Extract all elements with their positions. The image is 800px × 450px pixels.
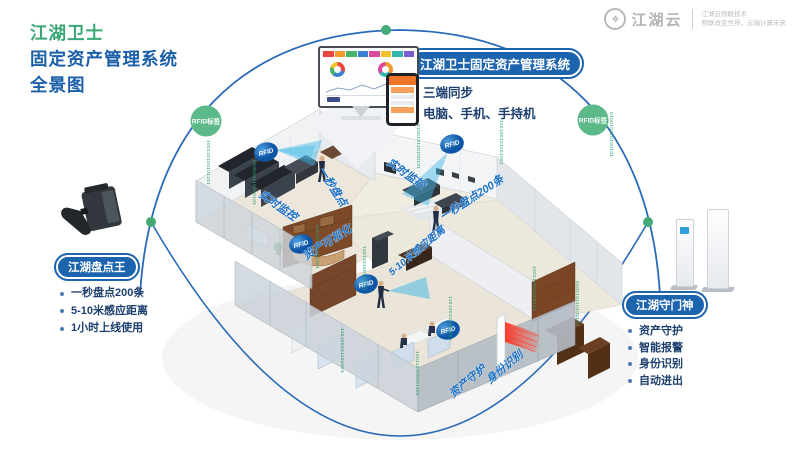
- gate-bullet: 资产守护: [628, 323, 706, 340]
- system-bullet: 三端同步: [412, 83, 582, 104]
- logo-name: 江湖云: [631, 9, 682, 30]
- connection-dot-right: [643, 217, 653, 227]
- logo-taglines: 江湖云物联技术 物联改变世界，云端计算未来: [702, 10, 787, 28]
- binary-string: 100110100101101: [415, 351, 420, 396]
- gate-bullets: 资产守护 智能报警 身份识别 自动进出: [628, 323, 706, 389]
- gate-pillar-with-screen: [676, 219, 694, 287]
- gate-bullet: 智能报警: [628, 340, 706, 357]
- phone-content-block: [391, 87, 414, 93]
- title-line-3: 全景图: [30, 72, 178, 98]
- binary-string: 010010110100101: [252, 160, 257, 205]
- scanner-pill: 江湖盘点王: [56, 255, 138, 279]
- gate-screen: [680, 227, 689, 234]
- binary-string: 010010110100101: [416, 124, 421, 169]
- scanner-bullet: 一秒盘点200条: [60, 285, 148, 303]
- gate-pill: 江湖守门神: [624, 293, 706, 317]
- binary-string: 010010110100101: [609, 112, 614, 157]
- system-pill: 江湖卫士固定资产管理系统: [408, 50, 582, 77]
- rfid-node-right-label: RFID标签: [579, 116, 608, 125]
- scanner-bullet: 1小时上线使用: [60, 320, 148, 338]
- poster: RFID RFID RFID RFID RFID 100110100101101…: [0, 0, 800, 450]
- handheld-scanner-device: [57, 182, 123, 239]
- phone-content-row: [391, 95, 414, 99]
- title-line-1: 江湖卫士: [30, 20, 178, 46]
- connection-dot-left: [146, 217, 156, 227]
- callout-system: 江湖卫士固定资产管理系统 三端同步 电脑、手机、手持机: [408, 50, 582, 125]
- gate-bullet: 自动进出: [628, 373, 706, 390]
- callout-gate: 江湖守门神 资产守护 智能报警 身份识别 自动进出: [624, 293, 706, 389]
- callout-scanner: 江湖盘点王 一秒盘点200条 5-10米感应距离 1小时上线使用: [56, 255, 148, 338]
- binary-string: 010010110100101: [575, 281, 580, 326]
- gate-pillar: [707, 209, 729, 289]
- phone-content-row: [391, 101, 414, 105]
- phone-content-block: [391, 107, 414, 113]
- logo-diamond-icon: ❖: [604, 8, 626, 30]
- binary-string: 110100101101001: [448, 296, 453, 341]
- mobile-phone: [386, 73, 419, 126]
- gate-bullet: 身份识别: [628, 356, 706, 373]
- connection-dot-top: [381, 25, 391, 35]
- logo-tagline-2: 物联改变世界，云端计算未来: [702, 19, 787, 28]
- binary-string: 100110100101101: [206, 140, 211, 185]
- scanner-bullets: 一秒盘点200条 5-10米感应距离 1小时上线使用: [60, 285, 148, 338]
- title-line-2: 固定资产管理系统: [30, 46, 178, 72]
- donut-chart: [330, 62, 345, 77]
- brand-logo: ❖ 江湖云 江湖云物联技术 物联改变世界，云端计算未来: [604, 8, 786, 30]
- system-bullet: 电脑、手机、手持机: [412, 104, 582, 125]
- binary-string: 100110100101101: [532, 266, 537, 311]
- binary-string: 110100101101001: [340, 328, 345, 373]
- rfid-node-left-label: RFID标签: [192, 117, 221, 126]
- kpi-tiles: [323, 51, 414, 57]
- system-bullets: 三端同步 电脑、手机、手持机: [412, 83, 582, 125]
- logo-tagline-1: 江湖云物联技术: [702, 10, 787, 19]
- monitor-base: [341, 116, 381, 120]
- page-title: 江湖卫士 固定资产管理系统 全景图: [30, 20, 178, 98]
- dashboard-button: [327, 97, 340, 102]
- phone-header: [389, 76, 416, 85]
- logo-divider: [692, 9, 693, 29]
- binary-string: 110100101101001: [499, 120, 504, 165]
- binary-string: 100110100101101: [362, 246, 367, 291]
- scanner-bullet: 5-10米感应距离: [60, 303, 148, 321]
